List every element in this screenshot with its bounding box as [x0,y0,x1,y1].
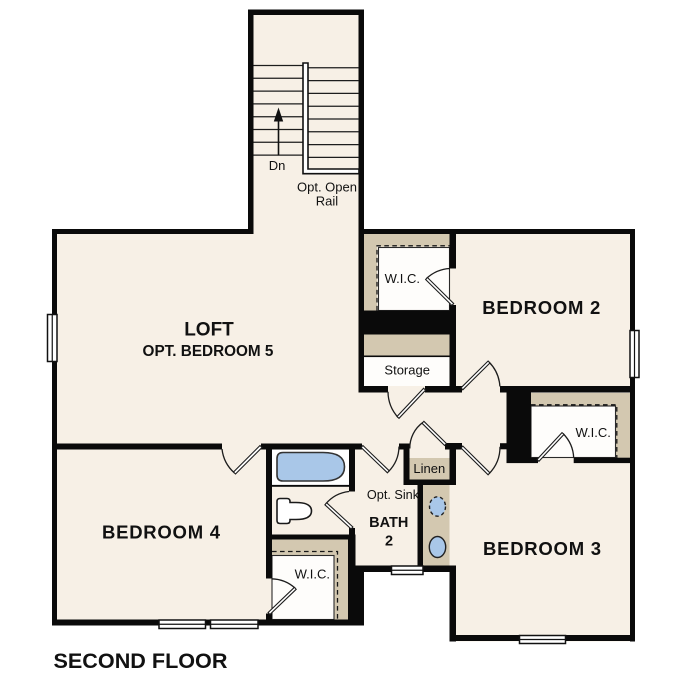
svg-text:BEDROOM 4: BEDROOM 4 [102,521,221,542]
svg-text:Rail: Rail [316,194,339,209]
svg-text:BEDROOM 2: BEDROOM 2 [482,297,601,318]
svg-text:W.I.C.: W.I.C. [385,271,420,286]
svg-text:Dn: Dn [269,158,286,173]
svg-text:Opt. Open: Opt. Open [297,180,357,195]
svg-text:Opt. Sink: Opt. Sink [367,488,420,502]
svg-text:Storage: Storage [384,363,430,378]
svg-text:W.I.C.: W.I.C. [576,425,611,440]
svg-text:BATH: BATH [369,515,408,531]
svg-text:LOFT: LOFT [184,320,234,341]
svg-text:2: 2 [385,534,393,550]
svg-text:BEDROOM 3: BEDROOM 3 [483,538,602,559]
svg-text:Linen: Linen [413,461,445,476]
svg-text:W.I.C.: W.I.C. [295,566,330,581]
svg-text:OPT. BEDROOM 5: OPT. BEDROOM 5 [143,343,274,360]
svg-text:SECOND FLOOR: SECOND FLOOR [54,648,228,673]
